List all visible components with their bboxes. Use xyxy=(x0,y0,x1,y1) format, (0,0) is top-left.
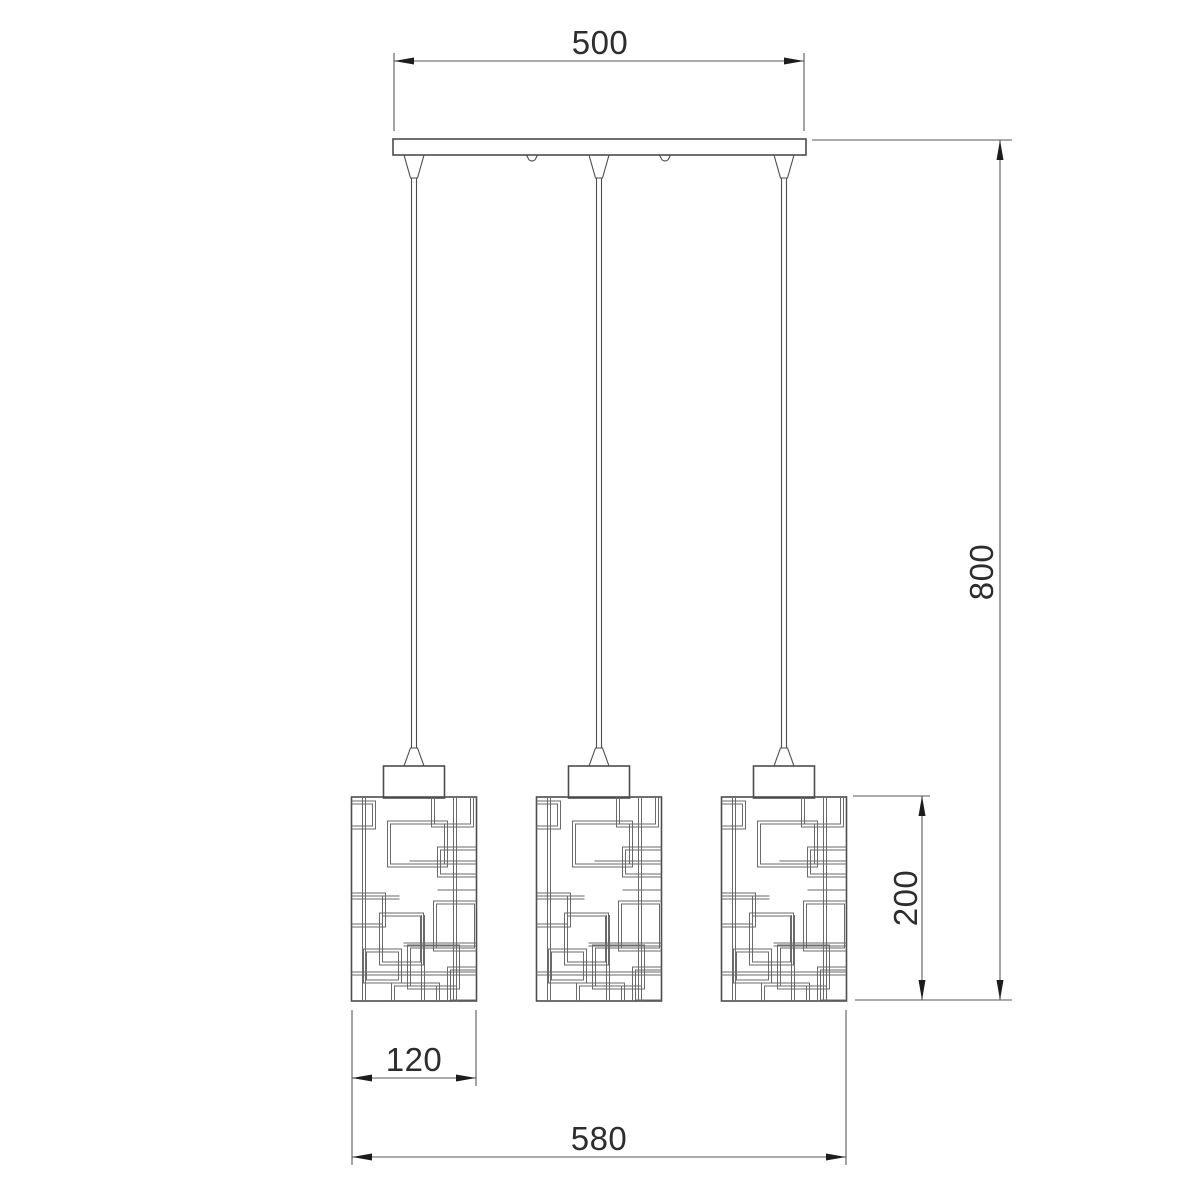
ceiling-canopy xyxy=(393,139,806,155)
technical-drawing-canvas: 500 800 200 120 580 xyxy=(0,0,1200,1200)
pendant-lamp-dimension-drawing: 500 800 200 120 580 xyxy=(0,0,1200,1200)
dimension-label-shade-width: 120 xyxy=(386,1041,443,1078)
canopy-screw-right xyxy=(660,155,671,161)
pendant-unit-1 xyxy=(338,155,488,1013)
dimension-shade-height: 200 xyxy=(853,796,930,1000)
dimension-label-canopy-width: 500 xyxy=(572,24,629,61)
dimension-label-shade-height: 200 xyxy=(887,870,924,927)
dimension-label-drop-height: 800 xyxy=(963,544,1000,601)
canopy-screw-left xyxy=(527,155,538,161)
pendant-unit-2 xyxy=(523,155,673,1013)
pendant-unit-3 xyxy=(708,155,858,1013)
dimension-overall-width: 580 xyxy=(352,1010,846,1165)
dimension-label-overall-width: 580 xyxy=(571,1120,628,1157)
dimension-shade-width: 120 xyxy=(352,1010,476,1165)
dimension-canopy-width: 500 xyxy=(394,24,804,131)
